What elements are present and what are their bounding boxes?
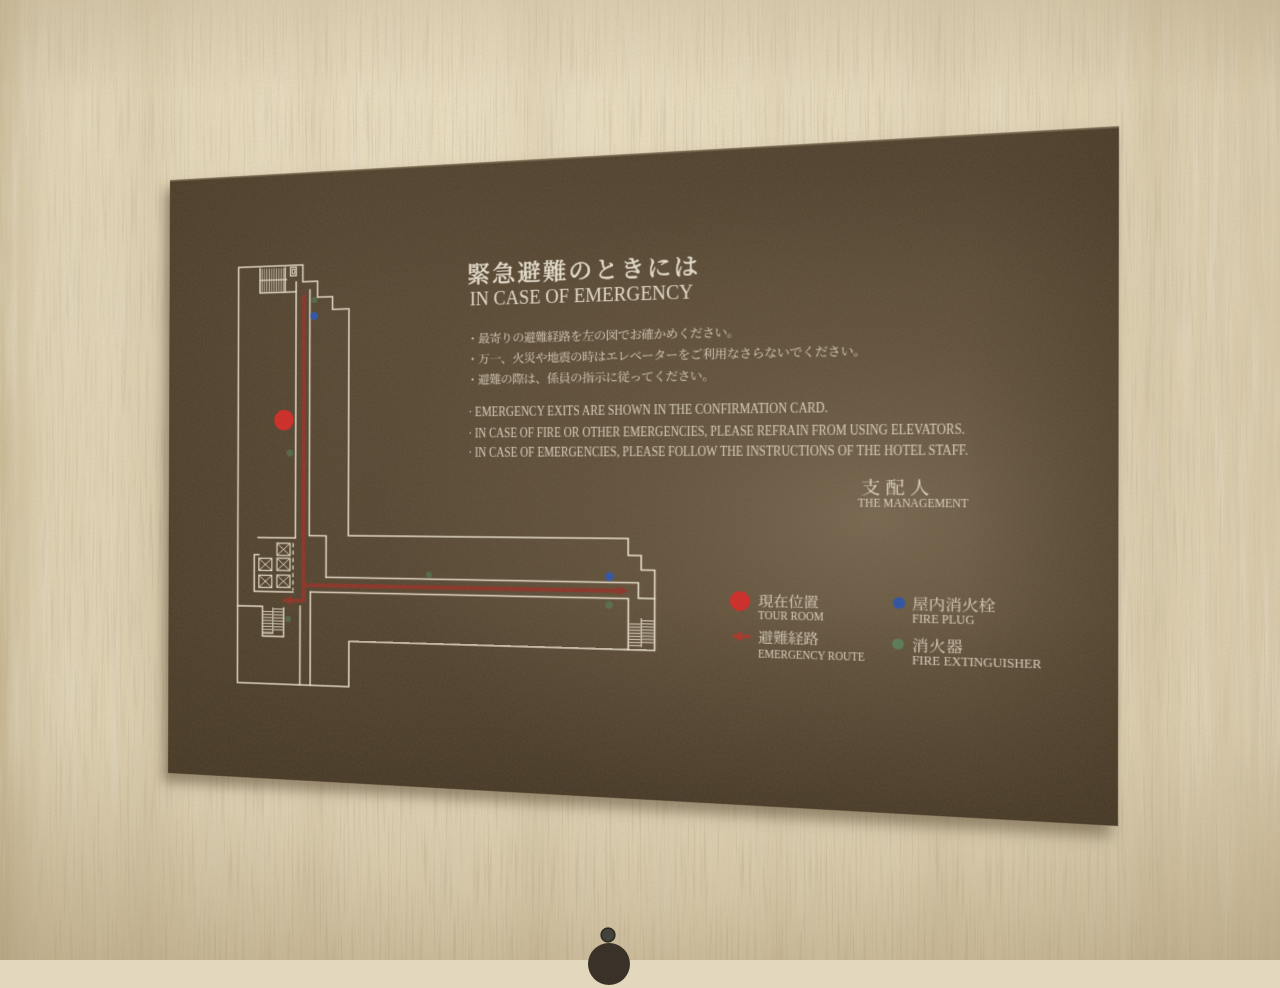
svg-text:TOUR ROOM: TOUR ROOM xyxy=(758,610,824,624)
svg-text:FIRE PLUG: FIRE PLUG xyxy=(912,614,975,629)
svg-text:· IN CASE OF EMERGENCIES, PLEA: · IN CASE OF EMERGENCIES, PLEASE FOLLOW … xyxy=(468,442,968,461)
svg-text:THE MANAGEMENT: THE MANAGEMENT xyxy=(858,497,969,511)
